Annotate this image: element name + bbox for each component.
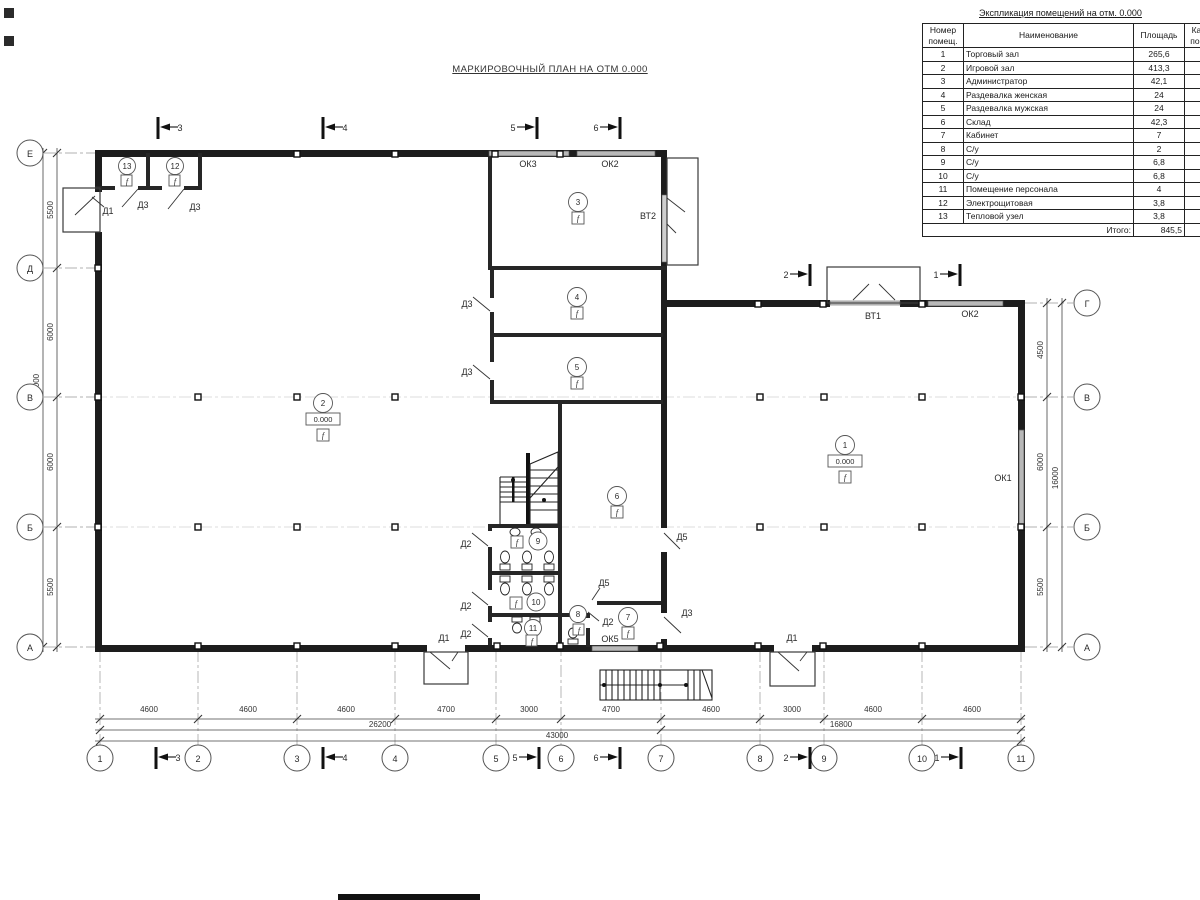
svg-text:2: 2 (783, 753, 788, 763)
table-row: 12Электрощитовая3,8 (923, 196, 1200, 210)
cell-name: Торговый зал (964, 48, 1134, 62)
vestibule-entry-left (424, 652, 468, 684)
cell-name: Раздевалка мужская (964, 102, 1134, 116)
label-vt2: ВТ2 (640, 211, 656, 221)
cell-area: 3,8 (1134, 196, 1185, 210)
room-number-3: 3 (576, 198, 581, 207)
axis-8: 8 (757, 754, 762, 764)
label-d2-wc8: Д2 (602, 617, 613, 627)
header-cat: Кат. пом. (1185, 24, 1200, 48)
exterior-stair (600, 670, 712, 700)
cell-name: Администратор (964, 75, 1134, 89)
cell-cat (1185, 75, 1200, 89)
header-area: Площадь (1134, 24, 1185, 48)
label-d3-room4: Д3 (461, 299, 472, 309)
cell-name: Кабинет (964, 129, 1134, 143)
dim-bottom-10: 4600 (963, 705, 981, 714)
table-row: 8С/у2 (923, 142, 1200, 156)
total-cat (1185, 223, 1200, 237)
axis-E: Е (27, 149, 33, 159)
label-ok1: ОК1 (994, 473, 1011, 483)
window-ok2-right (928, 301, 1003, 306)
axis-bubbles-left: Е Д В Б А (17, 140, 43, 660)
room-number-1: 1 (843, 441, 848, 450)
cell-cat (1185, 48, 1200, 62)
interior-stair (500, 452, 558, 524)
room-number-11: 11 (529, 624, 538, 633)
axis-6: 6 (558, 754, 563, 764)
cell-area: 4 (1134, 183, 1185, 197)
cell-num: 12 (923, 196, 964, 210)
explication-table: Экспликация помещений на отм. 0.000 Номе… (922, 8, 1199, 237)
axis-D: Д (27, 264, 33, 274)
section-6-top: 6 (593, 117, 621, 139)
section-6-bottom: 6 (593, 747, 621, 769)
table-row: 13Тепловой узел3,8 (923, 210, 1200, 224)
room-number-12: 12 (171, 162, 180, 171)
vestibule-top-left (63, 188, 100, 232)
axis-10: 10 (917, 754, 927, 764)
dim-left-2: 6000 (46, 323, 55, 341)
table-row: 7Кабинет7 (923, 129, 1200, 143)
axis-bubbles-right: Г В Б А (1074, 290, 1100, 660)
cell-area: 42,3 (1134, 115, 1185, 129)
cell-cat (1185, 196, 1200, 210)
svg-text:6: 6 (593, 123, 598, 133)
room-number-7: 7 (626, 613, 631, 622)
room-marker-11: 11 f (525, 620, 542, 647)
edge-artifact-second (4, 36, 14, 46)
svg-text:1: 1 (934, 753, 939, 763)
cell-num: 2 (923, 61, 964, 75)
cell-cat (1185, 183, 1200, 197)
label-d3-room5: Д3 (461, 367, 472, 377)
label-d2-wc9: Д2 (460, 539, 471, 549)
room-number-2: 2 (321, 399, 326, 408)
edge-artifact-top (4, 8, 14, 18)
room-marker-7: 7 f (619, 608, 638, 640)
dimension-lines (39, 148, 1066, 745)
rooms-table: Номер помещ. Наименование Площадь Кат. п… (922, 23, 1200, 237)
svg-text:5: 5 (512, 753, 517, 763)
dim-bottom-5: 3000 (520, 705, 538, 714)
svg-text:6: 6 (593, 753, 598, 763)
svg-text:5: 5 (510, 123, 515, 133)
table-row: 5Раздевалка мужская24 (923, 102, 1200, 116)
dim-bottom-9: 4600 (864, 705, 882, 714)
room-marker-1: 1 0.000 f (828, 436, 862, 484)
cell-name: Помещение персонала (964, 183, 1134, 197)
sink (510, 528, 520, 536)
dim-right-3: 5500 (1036, 578, 1045, 596)
header-num: Номер помещ. (923, 24, 964, 48)
axis-3: 3 (294, 754, 299, 764)
cell-num: 11 (923, 183, 964, 197)
cell-name: Электрощитовая (964, 196, 1134, 210)
axis-1: 1 (97, 754, 102, 764)
label-d3-room13: Д3 (137, 200, 148, 210)
dim-bottom-2: 4600 (239, 705, 257, 714)
cell-cat (1185, 88, 1200, 102)
dim-right-2: 6000 (1036, 453, 1045, 471)
section-1-bottom: 1 (934, 747, 962, 769)
axis-V-left: В (27, 393, 33, 403)
cell-num: 6 (923, 115, 964, 129)
window-ok2-top (577, 151, 655, 156)
room-marker-2: 2 0.000 f (306, 394, 340, 442)
label-ok2-right: ОК2 (961, 309, 978, 319)
cell-area: 2 (1134, 142, 1185, 156)
header-name: Наименование (964, 24, 1134, 48)
vt2-opening (662, 195, 667, 262)
cell-area: 24 (1134, 102, 1185, 116)
dim-bottom-4: 4700 (437, 705, 455, 714)
cell-cat (1185, 156, 1200, 170)
cell-num: 3 (923, 75, 964, 89)
label-ok5: ОК5 (601, 634, 618, 644)
room-number-8: 8 (576, 610, 581, 619)
table-row: 9С/у6,8 (923, 156, 1200, 170)
section-4-top: 4 (322, 117, 348, 139)
total-label: Итого: (923, 223, 1134, 237)
axis-B-left: Б (27, 523, 33, 533)
room-number-5: 5 (575, 363, 580, 372)
svg-text:4: 4 (342, 753, 347, 763)
section-3-bottom: 3 (155, 747, 181, 769)
axis-2: 2 (195, 754, 200, 764)
dim-bottom-7: 4600 (702, 705, 720, 714)
axis-4: 4 (392, 754, 397, 764)
table-row: 11Помещение персонала4 (923, 183, 1200, 197)
label-d1-topleft: Д1 (102, 206, 113, 216)
cell-num: 10 (923, 169, 964, 183)
axis-B-right: Б (1084, 523, 1090, 533)
cell-area: 7 (1134, 129, 1185, 143)
axis-9: 9 (821, 754, 826, 764)
cell-cat (1185, 61, 1200, 75)
axis-11: 11 (1016, 754, 1025, 764)
cell-num: 13 (923, 210, 964, 224)
table-row: 3Администратор42,1 (923, 75, 1200, 89)
dim-right-1: 4500 (1036, 341, 1045, 359)
label-d2-wc10: Д2 (460, 601, 471, 611)
label-d2-wc11: Д2 (460, 629, 471, 639)
axis-V-right: В (1084, 393, 1090, 403)
axis-5: 5 (493, 754, 498, 764)
cell-num: 8 (923, 142, 964, 156)
axis-A-right: А (1084, 643, 1090, 653)
plan-title: МАРКИРОВОЧНЫЙ ПЛАН НА ОТМ 0.000 (420, 64, 680, 75)
cell-num: 4 (923, 88, 964, 102)
cell-name: С/у (964, 169, 1134, 183)
interior-partitions (95, 153, 667, 647)
room-marker-5: 5 f (568, 358, 587, 390)
room-marker-3: 3 f (569, 193, 588, 225)
cell-cat (1185, 102, 1200, 116)
axis-G: Г (1085, 299, 1090, 309)
cell-num: 1 (923, 48, 964, 62)
vestibule-vt2 (667, 158, 698, 265)
cell-cat (1185, 115, 1200, 129)
window-ok5 (592, 646, 638, 651)
cell-cat (1185, 169, 1200, 183)
table-header-row: Номер помещ. Наименование Площадь Кат. п… (923, 24, 1200, 48)
elevation-room2: 0.000 (314, 415, 333, 424)
elevation-room1: 0.000 (836, 457, 855, 466)
cell-area: 6,8 (1134, 156, 1185, 170)
cell-area: 24 (1134, 88, 1185, 102)
cell-area: 6,8 (1134, 169, 1185, 183)
cell-area: 42,1 (1134, 75, 1185, 89)
room-number-4: 4 (575, 293, 580, 302)
room-marker-4: 4 f (568, 288, 587, 320)
cell-cat (1185, 129, 1200, 143)
dim-total-43000: 43000 (546, 731, 569, 740)
total-value: 845,5 (1134, 223, 1185, 237)
table-row: 1Торговый зал265,6 (923, 48, 1200, 62)
axis-bubbles-bottom: 1 2 3 4 5 6 7 8 9 10 11 (87, 745, 1034, 771)
cell-num: 9 (923, 156, 964, 170)
room-number-9: 9 (536, 537, 541, 546)
label-d5-hall: Д5 (676, 532, 687, 542)
svg-text:2: 2 (783, 270, 788, 280)
room-number-13: 13 (123, 162, 132, 171)
cell-name: С/у (964, 142, 1134, 156)
label-vt1: ВТ1 (865, 311, 881, 321)
dim-sub-16800: 16800 (830, 720, 853, 729)
svg-text:3: 3 (175, 753, 180, 763)
svg-text:3: 3 (177, 123, 182, 133)
room-number-10: 10 (532, 598, 541, 607)
cell-area: 413,3 (1134, 61, 1185, 75)
vestibule-entry-right (770, 652, 815, 686)
dim-left-1: 5500 (46, 201, 55, 219)
bottom-edge-artifact (338, 894, 480, 900)
cell-num: 7 (923, 129, 964, 143)
dim-sub-26200: 26200 (369, 720, 392, 729)
cell-cat (1185, 210, 1200, 224)
dim-bottom-6: 4700 (602, 705, 620, 714)
section-1-plan: 1 (933, 264, 961, 286)
dim-bottom-1: 4600 (140, 705, 158, 714)
cell-num: 5 (923, 102, 964, 116)
cell-name: С/у (964, 156, 1134, 170)
room-number-6: 6 (615, 492, 620, 501)
label-d5-office: Д5 (598, 578, 609, 588)
cell-name: Склад (964, 115, 1134, 129)
label-ok3: ОК3 (519, 159, 536, 169)
cell-cat (1185, 142, 1200, 156)
room-marker-10: 10 f (510, 593, 545, 611)
section-4-bottom: 4 (322, 747, 348, 769)
svg-text:1: 1 (933, 270, 938, 280)
window-ok1 (1019, 430, 1024, 530)
label-d1-bottomright: Д1 (786, 633, 797, 643)
cell-name: Раздевалка женская (964, 88, 1134, 102)
axis-A-left: А (27, 643, 33, 653)
dim-bottom-3: 4600 (337, 705, 355, 714)
table-row: 6Склад42,3 (923, 115, 1200, 129)
label-d3-room12: Д3 (189, 202, 200, 212)
cell-name: Игровой зал (964, 61, 1134, 75)
label-d1-bottomleft: Д1 (438, 633, 449, 643)
room-marker-13: 13 f (119, 158, 136, 187)
cell-area: 265,6 (1134, 48, 1185, 62)
dim-bottom-8: 3000 (783, 705, 801, 714)
room-marker-12: 12 f (167, 158, 184, 187)
table-total-row: Итого: 845,5 (923, 223, 1200, 237)
table-row: 2Игровой зал413,3 (923, 61, 1200, 75)
axis-7: 7 (658, 754, 663, 764)
section-3-top: 3 (157, 117, 183, 139)
vestibule-vt1 (827, 267, 920, 303)
table-row: 10С/у6,8 (923, 169, 1200, 183)
dim-right-total: 16000 (1051, 466, 1060, 489)
section-5-bottom: 5 (512, 747, 540, 769)
table-row: 4Раздевалка женская24 (923, 88, 1200, 102)
dim-left-4: 5500 (46, 578, 55, 596)
dim-left-3: 6000 (46, 453, 55, 471)
door-swings (75, 189, 895, 671)
cell-name: Тепловой узел (964, 210, 1134, 224)
drawing-sheet: МАРКИРОВОЧНЫЙ ПЛАН НА ОТМ 0.000 (0, 0, 1200, 900)
label-d3-hall: Д3 (681, 608, 692, 618)
section-2-plan: 2 (783, 264, 811, 286)
svg-text:4: 4 (342, 123, 347, 133)
cell-area: 3,8 (1134, 210, 1185, 224)
room-marker-6: 6 f (608, 487, 627, 519)
label-ok2-top: ОК2 (601, 159, 618, 169)
section-2-bottom: 2 (783, 747, 811, 769)
explication-title: Экспликация помещений на отм. 0.000 (922, 8, 1199, 18)
section-5-top: 5 (510, 117, 538, 139)
